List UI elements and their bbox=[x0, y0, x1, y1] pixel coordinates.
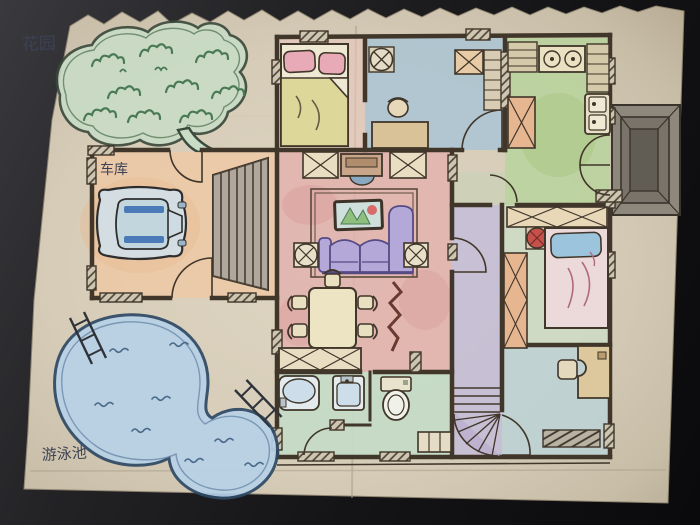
kitchen-sink-icon bbox=[585, 94, 610, 134]
aquarium-picture-icon bbox=[335, 200, 383, 230]
garden-label: 花园 bbox=[21, 34, 56, 55]
dining-table-icon bbox=[309, 288, 356, 348]
pillow-icon bbox=[551, 232, 602, 258]
sideboard-x-icon bbox=[279, 348, 361, 370]
fridge-shelf-icon bbox=[484, 50, 501, 110]
floor-plan-drawing: 花园 bbox=[0, 0, 700, 525]
bed-icon bbox=[281, 44, 348, 146]
side-table-icon bbox=[294, 243, 318, 267]
photo-scene: 花园 bbox=[0, 0, 700, 525]
fold-crease-horizontal bbox=[30, 470, 666, 471]
toilet-icon bbox=[381, 377, 411, 420]
pool-label: 游泳池 bbox=[41, 444, 87, 464]
garage-car-icon bbox=[97, 187, 186, 259]
pillow-icon bbox=[319, 53, 346, 75]
wardrobe-icon bbox=[504, 253, 527, 348]
bedroom1 bbox=[281, 44, 348, 146]
closet-x-icon bbox=[507, 207, 607, 227]
side-table-icon bbox=[404, 243, 428, 267]
ceiling-fan-icon bbox=[369, 47, 394, 72]
pillow-icon bbox=[283, 50, 315, 73]
staircase-icon bbox=[213, 158, 268, 290]
chair-icon bbox=[388, 99, 408, 117]
stove-icon bbox=[539, 46, 585, 72]
bath-shelf-icon bbox=[418, 432, 451, 452]
bed-icon bbox=[545, 228, 608, 328]
bathtub-icon bbox=[279, 376, 319, 410]
balcony-railing bbox=[543, 430, 600, 447]
chair-icon bbox=[558, 360, 577, 379]
washbasin-icon bbox=[333, 376, 364, 410]
garage-label: 车库 bbox=[100, 161, 128, 178]
cabinet-x-icon bbox=[455, 50, 483, 74]
cabinet-x-icon bbox=[508, 97, 535, 148]
